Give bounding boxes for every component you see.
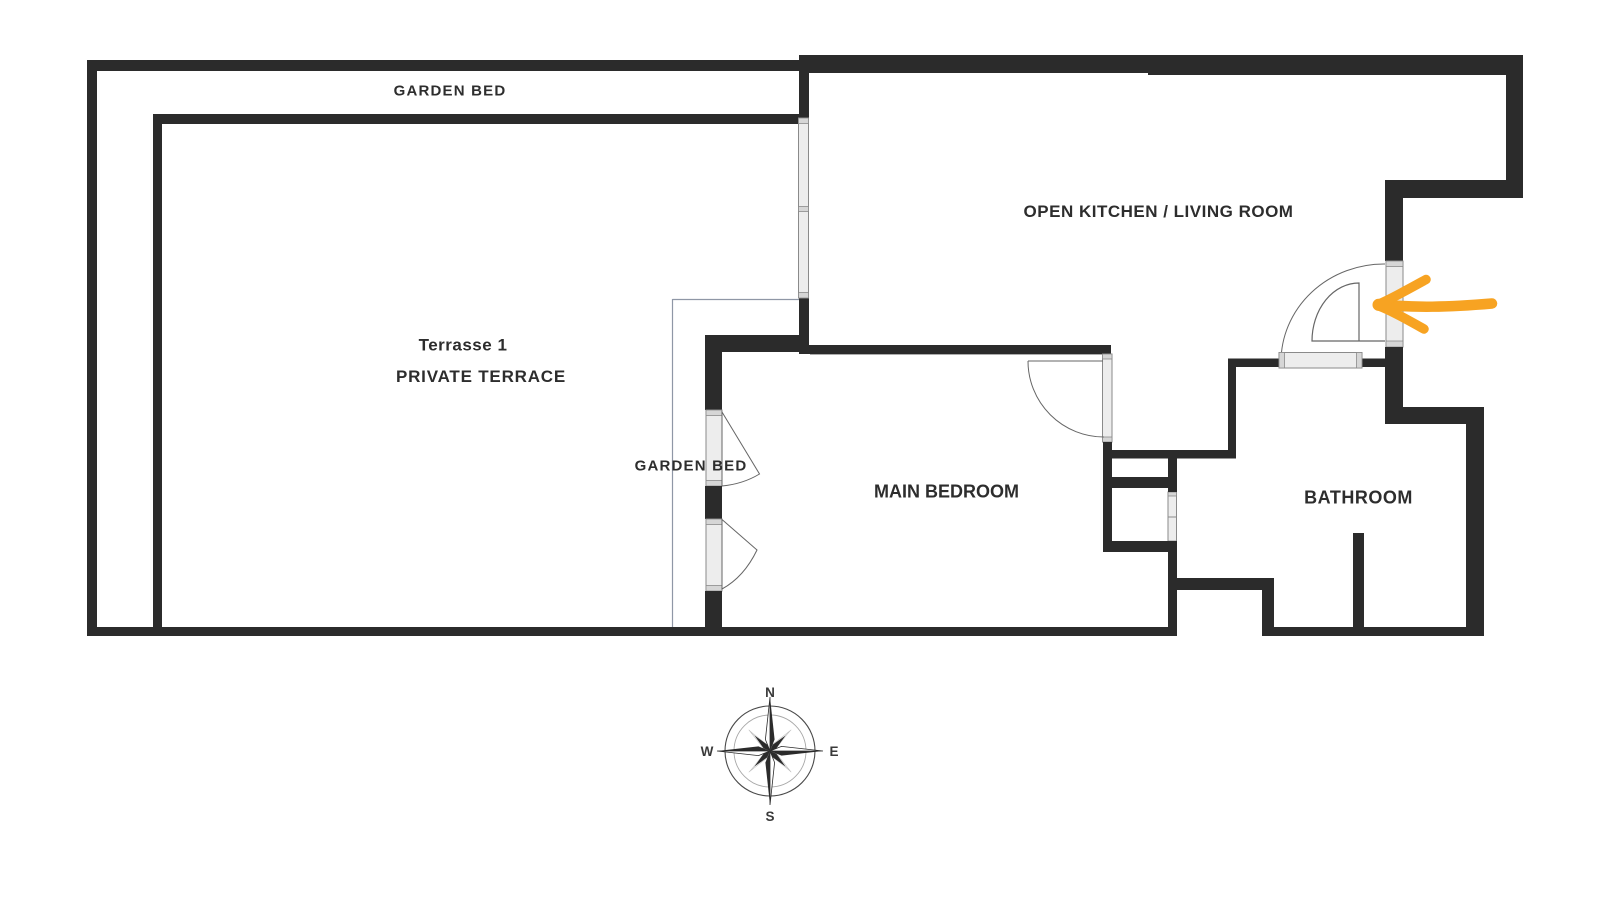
svg-text:PRIVATE TERRACE: PRIVATE TERRACE xyxy=(396,367,566,386)
svg-text:N: N xyxy=(765,685,775,700)
svg-text:Terrasse 1: Terrasse 1 xyxy=(419,336,508,355)
svg-text:OPEN KITCHEN / LIVING ROOM: OPEN KITCHEN / LIVING ROOM xyxy=(1024,202,1294,221)
svg-text:MAIN BEDROOM: MAIN BEDROOM xyxy=(874,482,1019,502)
svg-text:E: E xyxy=(829,744,838,759)
svg-text:BATHROOM: BATHROOM xyxy=(1304,488,1413,508)
svg-text:GARDEN BED: GARDEN BED xyxy=(635,458,748,475)
svg-text:W: W xyxy=(701,744,714,759)
svg-text:S: S xyxy=(765,809,774,824)
svg-text:GARDEN BED: GARDEN BED xyxy=(394,83,507,100)
